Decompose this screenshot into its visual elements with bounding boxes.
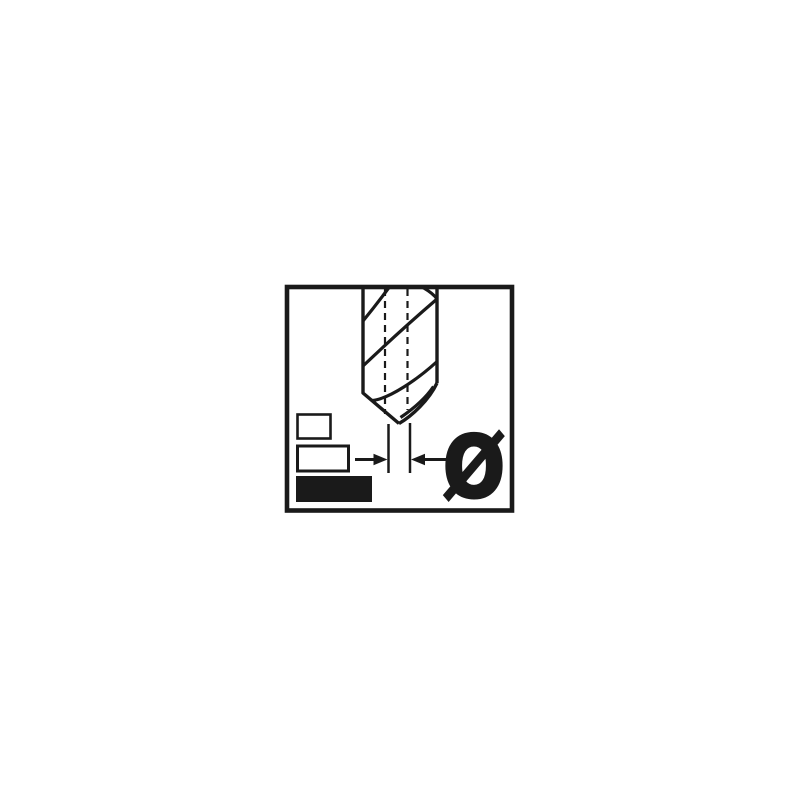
size-indicator-large (296, 476, 372, 502)
page-background: Ø (0, 0, 800, 800)
size-indicator-small (298, 415, 331, 439)
drill-diameter-pictogram: Ø (0, 0, 800, 800)
size-indicator-medium (298, 446, 349, 471)
diameter-symbol: Ø (443, 418, 505, 518)
